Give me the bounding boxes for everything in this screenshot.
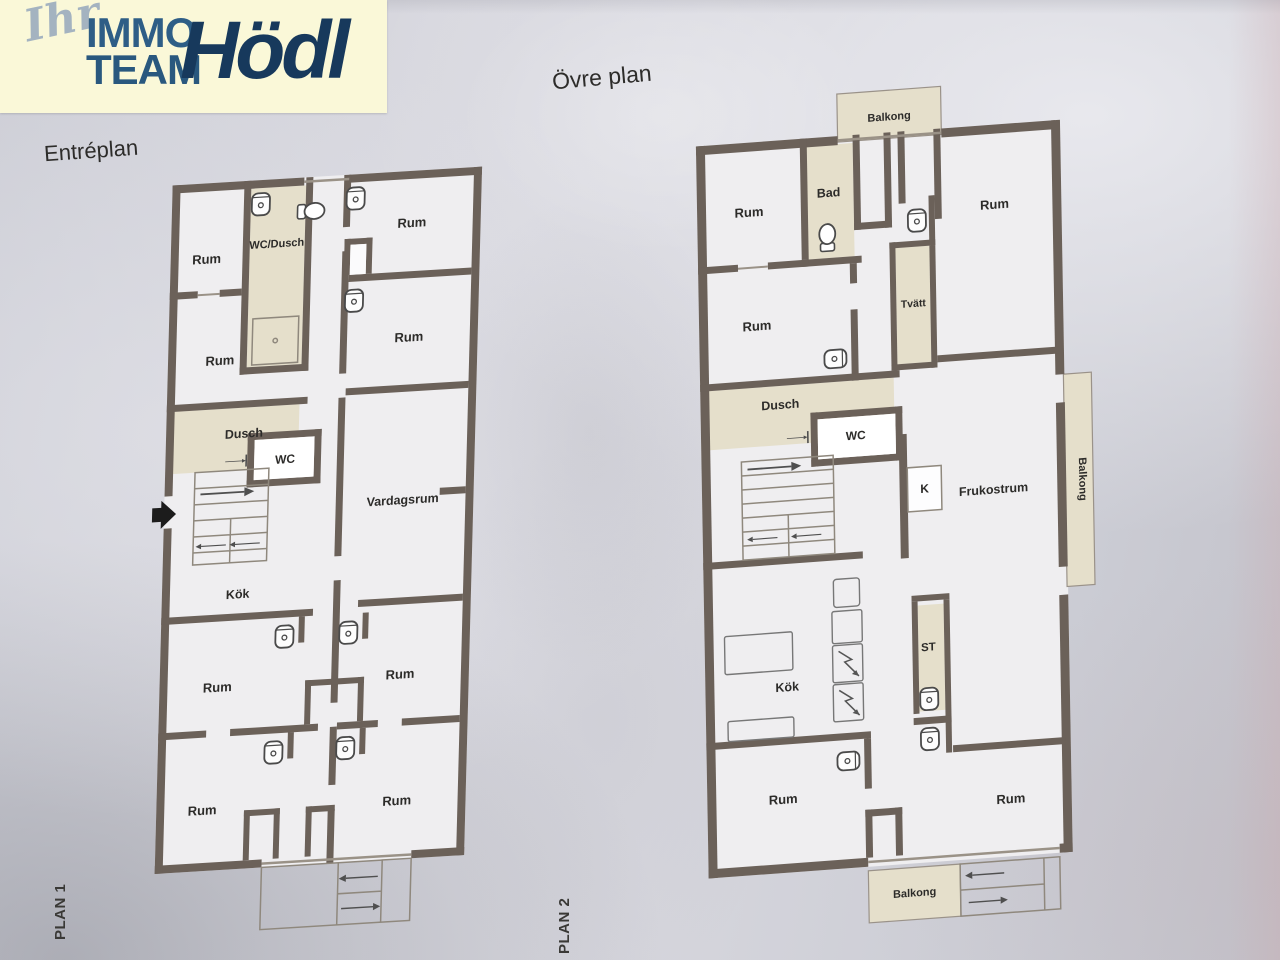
sink-icon bbox=[837, 751, 859, 771]
room-label: Rum bbox=[742, 317, 771, 334]
room-label: Dusch bbox=[225, 425, 263, 441]
room-label: Bad bbox=[817, 185, 841, 201]
room-label: Dusch bbox=[761, 397, 799, 414]
room-label: Rum bbox=[394, 329, 423, 346]
sink-icon bbox=[345, 289, 364, 312]
sink-icon bbox=[908, 209, 926, 232]
room-label: Tvätt bbox=[901, 297, 927, 311]
floorplan-photo: Entréplan Övre plan PLAN 1 PLAN 2 bbox=[0, 0, 1280, 960]
room-label: ST bbox=[921, 641, 936, 654]
logo-brand-text: Hödl bbox=[180, 4, 346, 98]
sink-icon bbox=[339, 621, 358, 644]
toilet-icon bbox=[819, 224, 835, 252]
sink-icon bbox=[336, 736, 355, 759]
immoteam-hoedl-logo: Ihr IMMO TEAM Hödl bbox=[0, 0, 387, 113]
room-label: WC bbox=[846, 428, 867, 443]
room-label: Rum bbox=[205, 352, 234, 369]
room-label: Rum bbox=[385, 666, 414, 683]
sink-icon bbox=[920, 687, 938, 710]
room-label: Rum bbox=[382, 792, 411, 809]
toilet-icon bbox=[297, 202, 324, 220]
plan2-floor bbox=[696, 120, 1073, 879]
sink-icon bbox=[346, 187, 365, 210]
plan2-title: Övre plan bbox=[551, 60, 653, 96]
exterior-stairs bbox=[260, 858, 411, 929]
exterior-stairs bbox=[960, 857, 1061, 916]
plan1-drawing: Rum WC/Dusch Rum Rum Rum Dusch WC Vardag… bbox=[144, 154, 494, 960]
sink-icon bbox=[252, 193, 271, 216]
plan1-title: Entréplan bbox=[43, 135, 139, 168]
room-label: Rum bbox=[397, 214, 426, 231]
room-label: Rum bbox=[996, 790, 1025, 807]
plan2-drawing: Balkong Rum Bad Rum Rum Tvätt Dusch WC K… bbox=[687, 62, 1131, 955]
plan1-side-label: PLAN 1 bbox=[52, 884, 69, 940]
sink-icon bbox=[275, 625, 294, 648]
sink-icon bbox=[264, 741, 283, 764]
plan2-side-label: PLAN 2 bbox=[556, 898, 573, 954]
room-label: Rum bbox=[203, 679, 232, 696]
room-label: K bbox=[920, 481, 929, 496]
room-label: Kök bbox=[775, 679, 799, 695]
room-label: Kök bbox=[226, 587, 250, 602]
room-label: Rum bbox=[980, 196, 1009, 213]
sink-icon bbox=[921, 727, 939, 750]
room-label: Rum bbox=[734, 204, 763, 221]
room-label: Rum bbox=[192, 251, 221, 268]
room-label: Rum bbox=[188, 802, 217, 819]
closet-box bbox=[350, 244, 367, 275]
room-label: Rum bbox=[769, 791, 798, 808]
room-label: Balkong bbox=[1076, 457, 1089, 501]
paper-sheet: Entréplan Övre plan PLAN 1 PLAN 2 bbox=[0, 0, 1280, 960]
sink-icon bbox=[824, 349, 846, 369]
room-label: WC bbox=[275, 452, 296, 467]
